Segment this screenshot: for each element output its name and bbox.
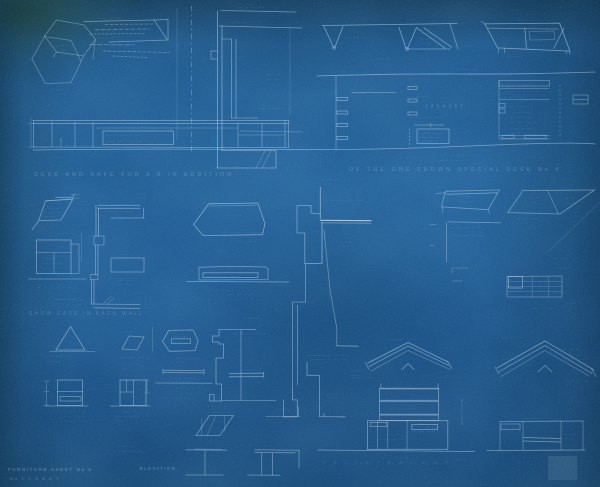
svg-text:1 2 3 4 5 6 7: 1 2 3 4 5 6 7 bbox=[425, 104, 464, 109]
svg-text:... ... ....: ... ... .... bbox=[369, 56, 390, 61]
svg-text:. . . .: . . . . bbox=[512, 220, 529, 225]
svg-text:. .. .: . .. . bbox=[285, 408, 296, 413]
svg-text:.. ..: .. .. bbox=[518, 16, 527, 21]
svg-text:A B L I G T B B C D E F: A B L I G T B B C D E F bbox=[322, 460, 452, 465]
svg-text:.. ... ....: .. ... .... bbox=[322, 176, 341, 181]
svg-text:.... .. .... ...: .... .. .... ... bbox=[520, 186, 548, 191]
svg-text:SHOW CASE IN BACK WALL: SHOW CASE IN BACK WALL bbox=[29, 311, 144, 317]
svg-text:... ..: ... .. bbox=[29, 201, 40, 206]
svg-text:... ..: ... .. bbox=[456, 456, 467, 461]
svg-text:. .. ..: . .. .. bbox=[325, 408, 337, 413]
svg-text:. . . . . . .: . . . . . . . bbox=[39, 284, 78, 289]
svg-text:.. .... .. ..: .. .... .. .. bbox=[502, 135, 525, 140]
svg-text:.. ...: .. ... bbox=[327, 391, 338, 396]
svg-text:... .....: ... ..... bbox=[553, 255, 569, 260]
svg-text:.. ...: .. ... bbox=[375, 62, 386, 67]
svg-text:... .... ... ....: ... .... ... .... bbox=[376, 436, 406, 441]
svg-text:. . . . . . . .: . . . . . . . . bbox=[377, 454, 421, 459]
svg-text:..... ..... ... .....: ..... ..... ... ..... bbox=[106, 138, 143, 143]
svg-text:. . . .: . . . . bbox=[63, 362, 80, 367]
svg-text:. . . . . . .: . . . . . . . bbox=[56, 418, 87, 423]
svg-text:... ....: ... .... bbox=[503, 424, 517, 429]
svg-text:.. ...: .. ... bbox=[45, 213, 56, 218]
svg-text:.. ...: .. ... bbox=[56, 47, 67, 52]
svg-text:.. .. ..: .. .. .. bbox=[174, 339, 188, 344]
svg-text:... ...... ... ....: ... ...... ... .... bbox=[330, 197, 364, 202]
svg-text:... ....: ... .... bbox=[352, 90, 366, 95]
svg-text:.... .. ....: .... .. .... bbox=[502, 334, 523, 339]
svg-text:.....: ..... bbox=[567, 300, 576, 305]
svg-text:... .... .. ..: ... .... .. .. bbox=[440, 157, 465, 162]
svg-text:ELEVATION: ELEVATION bbox=[140, 466, 176, 471]
svg-text:.. ........: .. ........ bbox=[242, 366, 261, 371]
svg-text:.. .... ..: .. .... .. bbox=[96, 35, 114, 40]
svg-text:....: .... bbox=[115, 417, 122, 422]
svg-text:... ..: ... .. bbox=[42, 265, 53, 270]
svg-text:.. ... ... .. ....: .. ... ... .. .... bbox=[410, 114, 442, 119]
svg-text:.... .. .... ...: .... .. .... ... bbox=[161, 395, 189, 400]
svg-text:... ... ....: ... ... .... bbox=[456, 66, 477, 71]
svg-text:FURNITURE SHEET No 9: FURNITURE SHEET No 9 bbox=[8, 467, 93, 472]
svg-text:...... .......: ...... ....... bbox=[119, 448, 144, 453]
svg-text:... ..: ... .. bbox=[504, 361, 515, 366]
svg-text:.... .... ....: .... .... .... bbox=[120, 354, 145, 359]
svg-text:.. ... ...: .. ... ... bbox=[411, 93, 429, 98]
svg-text:. . . . .: . . . . . bbox=[519, 154, 543, 159]
svg-text:.... ... ....: .... ... .... bbox=[345, 34, 368, 39]
svg-text:DESK AND SAFE FOR A B IN ADD: DESK AND SAFE FOR A B IN ADDITION bbox=[34, 172, 234, 178]
svg-text:........ .. ... ....: ........ .. ... .... bbox=[312, 356, 347, 361]
svg-text:.... ... ...: .... ... ... bbox=[532, 305, 553, 310]
svg-text:.. ..: .. .. bbox=[278, 282, 287, 287]
svg-text:.. ...: .. ... bbox=[564, 435, 575, 440]
svg-text:. . . . . . . . . . . . .: . . . . . . . . . . . . . bbox=[238, 448, 302, 453]
svg-text:.. ... ... .. ....: .. ... ... .. .... bbox=[230, 19, 262, 24]
svg-text:.. ...... ...: .. ...... ... bbox=[206, 403, 229, 408]
svg-text:OF THE ONE SHOWN SPECIAL DES: OF THE ONE SHOWN SPECIAL DESK No 4 bbox=[349, 167, 561, 173]
svg-text:.. ...... ..: .. ...... .. bbox=[54, 296, 75, 301]
svg-text:... .. .......: ... .. ....... bbox=[106, 208, 131, 213]
svg-text:..... .. ....: ..... .. .... bbox=[566, 377, 589, 382]
svg-text:... ....: ... .... bbox=[173, 333, 187, 338]
svg-text:.. ... ..: .. ... .. bbox=[507, 53, 523, 58]
svg-text:. . . .: . . . . bbox=[383, 384, 400, 389]
svg-text:... ..: ... .. bbox=[420, 40, 431, 45]
svg-text:... .. ...: ... .. ... bbox=[362, 16, 380, 21]
svg-text:. . . . .: . . . . . bbox=[226, 212, 242, 217]
svg-text:.. ....: .. .... bbox=[118, 281, 130, 286]
svg-text:... .. .... ... ...: ... .. .... ... ... bbox=[233, 330, 267, 335]
svg-text:.. ...: .. ... bbox=[147, 355, 158, 360]
svg-text:.. ...: .. ... bbox=[526, 199, 537, 204]
svg-text:.. .... ... .....: .. .... ... ..... bbox=[451, 224, 481, 229]
svg-text:... ..... .. ....: ... ..... .. .... bbox=[455, 232, 485, 237]
svg-text:... .... ... ..: ... .... ... .. bbox=[510, 119, 536, 124]
svg-text:.. ..: .. .. bbox=[560, 265, 569, 270]
svg-text:... ......: ... ...... bbox=[176, 378, 194, 383]
svg-text:..... .. ...: ..... .. ... bbox=[352, 374, 373, 379]
svg-text:. . . . . . . . . . . . .: . . . . . . . . . . . . . bbox=[496, 454, 565, 459]
svg-text:. . . .: . . . . bbox=[172, 359, 189, 364]
svg-text:... ... .. ..: ... ... .. .. bbox=[502, 94, 525, 99]
svg-text:.... .. ......: .... .. ...... bbox=[437, 374, 462, 379]
svg-text:.. ....... ... ..: .. ....... ... .. bbox=[206, 409, 236, 414]
svg-text:.. .... .....: .. .... ..... bbox=[413, 428, 436, 433]
svg-text:.. .... ... ... ....: .. .... ... ... .... bbox=[106, 132, 141, 137]
svg-text:. . . . . . . . . . . . . .: . . . . . . . . . . . . . . bbox=[191, 296, 266, 301]
svg-text:. . . . . . . .: . . . . . . . . bbox=[373, 154, 423, 159]
svg-text:. . . . . . . . .: . . . . . . . . . bbox=[92, 153, 149, 158]
svg-text:.....: ..... bbox=[125, 328, 134, 333]
svg-text:.... .. ......: .... .. ...... bbox=[259, 105, 284, 110]
svg-text:.. .... ..: .. .... .. bbox=[420, 138, 438, 143]
svg-text:.... .. ...: .... .. ... bbox=[507, 103, 526, 108]
svg-text:. . . . . . .: . . . . . . . bbox=[176, 385, 211, 390]
svg-text:.... .. .... ... .......: .... .. .... ... ....... bbox=[221, 229, 263, 234]
svg-text:... .....: ... ..... bbox=[228, 264, 244, 269]
svg-text:.. ... ....: .. ... .... bbox=[512, 109, 531, 114]
svg-text:... .. ... ....: ... .. ... .... bbox=[238, 4, 264, 9]
svg-text:... ..: ... .. bbox=[563, 355, 574, 360]
svg-text:.. .....: .. ..... bbox=[267, 81, 281, 86]
svg-text:. ... .. ....: . ... .. .... bbox=[98, 15, 121, 20]
svg-text:... . ... . ....: ... . ... . .... bbox=[388, 405, 416, 410]
svg-text:.. ......: .. ...... bbox=[458, 198, 474, 203]
svg-text:.... ... .... ... ..: .... ... .... ... .. bbox=[206, 273, 241, 278]
svg-text:.. ...... .: .. ...... . bbox=[243, 315, 262, 320]
svg-text:... ..: ... .. bbox=[436, 184, 447, 189]
svg-text:... ....: ... .... bbox=[50, 86, 64, 91]
svg-text:... ..: ... .. bbox=[502, 34, 513, 39]
svg-text:.. ... ..: .. ... .. bbox=[338, 243, 354, 248]
svg-text:... ..: ... .. bbox=[455, 129, 466, 134]
svg-text:.... .....: .... ..... bbox=[523, 415, 541, 420]
svg-text:. . . .: . . . . bbox=[124, 361, 141, 366]
svg-text:. . . .. ......: . . . .. ...... bbox=[230, 238, 256, 243]
svg-text:... .... ...: ... .... ... bbox=[96, 27, 117, 32]
svg-text:. . . . . . . .: . . . . . . . . bbox=[178, 164, 225, 169]
svg-text:... ....: ... .... bbox=[47, 358, 61, 363]
svg-text:... ...: ... ... bbox=[448, 208, 460, 213]
svg-text:... .. .... ....: ... .. .... .... bbox=[386, 336, 414, 341]
svg-text:No 1 2 3 5 6 7: No 1 2 3 5 6 7 bbox=[10, 476, 60, 481]
svg-text:... ...: ... ... bbox=[564, 200, 576, 205]
svg-text:. . . . . . .: . . . . . . . bbox=[240, 442, 273, 447]
svg-text:.. .... ... ...: .. .... ... ... bbox=[501, 81, 527, 86]
svg-text:. . . .: . . . . bbox=[58, 230, 77, 235]
